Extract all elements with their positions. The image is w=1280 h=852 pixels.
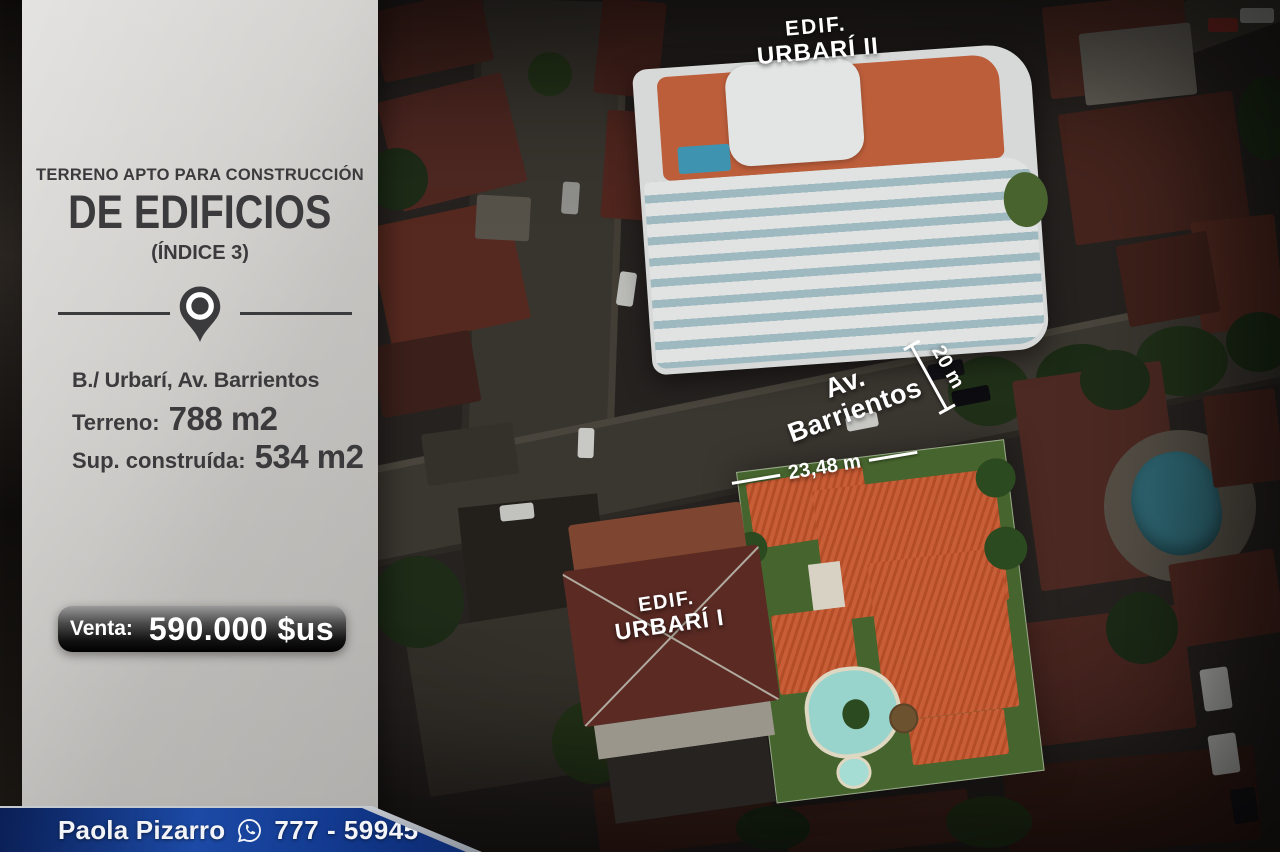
parked-car (616, 271, 638, 307)
patio (808, 561, 846, 611)
tree (1238, 76, 1280, 160)
tree (736, 806, 810, 850)
rooftop-pool (677, 143, 731, 174)
real-estate-flyer: EDIF. URBARÍ I EDIF. URBARÍ II Av. Barri… (0, 0, 1280, 852)
rooftop-dome (723, 57, 865, 167)
tree (946, 796, 1032, 848)
measure-line (868, 451, 917, 462)
house-roof (1203, 388, 1280, 488)
parked-car (1230, 786, 1260, 824)
building-urbari-1: EDIF. URBARÍ I (556, 500, 794, 827)
price-label: Venta: (70, 617, 133, 641)
location-divider (22, 282, 378, 354)
property-location: B./ Urbarí, Av. Barrientos (72, 368, 319, 393)
agent-name: Paola Pizarro (58, 815, 225, 846)
headline-main-text: DE EDIFICIOS (68, 184, 331, 239)
land-area-label: Terreno: (72, 410, 160, 436)
left-dark-edge (0, 0, 22, 852)
house-roof (1116, 231, 1221, 328)
built-area-value: 534 m2 (255, 438, 364, 476)
land-area-value: 788 m2 (169, 400, 278, 438)
headline-main: DE EDIFICIOS (22, 184, 378, 239)
headline-index: (ÍNDICE 3) (22, 242, 378, 265)
price-value: 590.000 $us (149, 611, 334, 648)
built-area-label: Sup. construída: (72, 448, 246, 474)
divider-line (240, 312, 352, 315)
round-pool (834, 754, 873, 791)
white-van (1199, 666, 1233, 711)
land-area-row: Terreno: 788 m2 (72, 400, 278, 438)
parked-car (561, 181, 580, 214)
info-panel: TERRENO APTO PARA CONSTRUCCIÓN DE EDIFIC… (22, 0, 378, 852)
price-badge: Venta: 590.000 $us (58, 606, 346, 652)
location-pin-icon (176, 282, 224, 353)
building-urbari-2 (632, 42, 1050, 375)
headline-top: TERRENO APTO PARA CONSTRUCCIÓN (22, 166, 378, 185)
shed-roof (475, 195, 531, 242)
house-roof (1168, 548, 1280, 648)
tree (528, 52, 572, 96)
white-van (1240, 8, 1274, 23)
tree (1106, 592, 1178, 664)
balcony-floors (644, 156, 1046, 369)
divider-line (58, 312, 170, 315)
flat-roof (1079, 22, 1198, 105)
parked-car (577, 428, 594, 459)
parked-car (1207, 732, 1240, 776)
measure-line (732, 474, 781, 485)
tree (372, 556, 464, 648)
built-area-row: Sup. construída: 534 m2 (72, 438, 364, 476)
whatsapp-icon (236, 817, 263, 844)
tree (1080, 350, 1150, 410)
red-car (1208, 18, 1238, 32)
